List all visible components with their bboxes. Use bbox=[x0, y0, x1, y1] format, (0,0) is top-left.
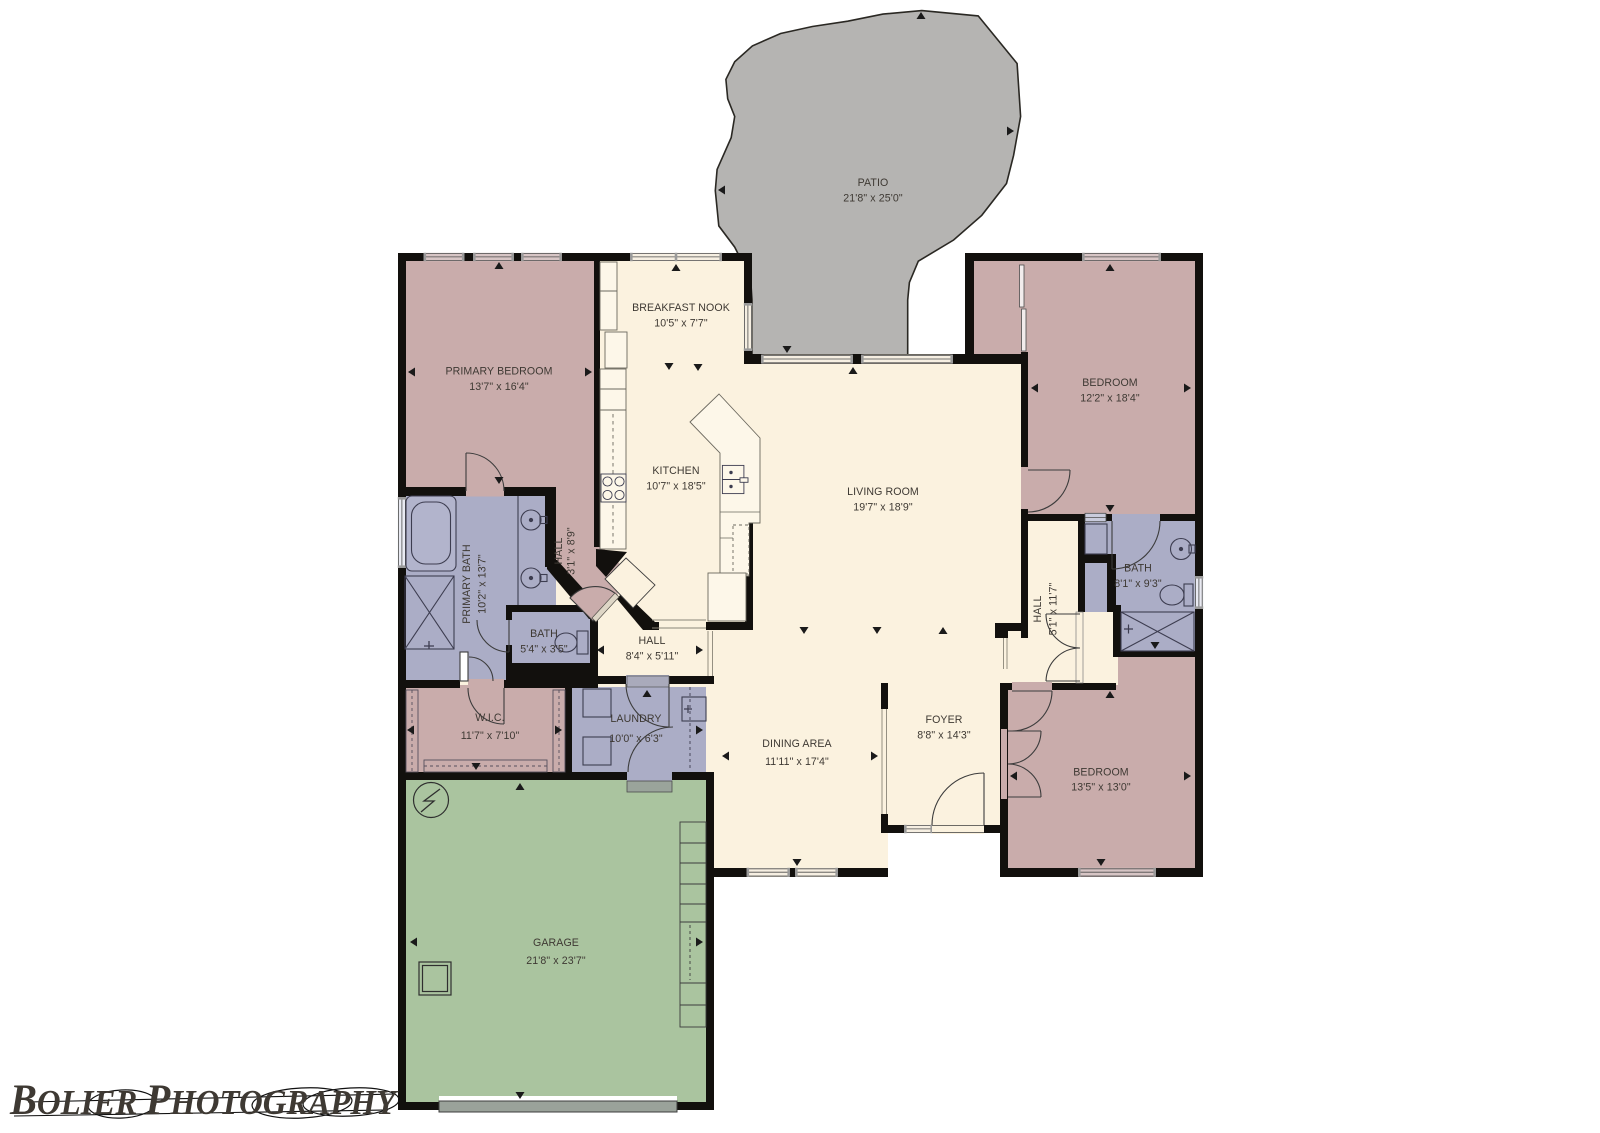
svg-text:DINING AREA: DINING AREA bbox=[762, 738, 832, 750]
svg-text:PRIMARY BATH: PRIMARY BATH bbox=[461, 544, 473, 624]
svg-text:5'4" x 3'5": 5'4" x 3'5" bbox=[520, 644, 568, 656]
svg-text:11'11" x 17'4": 11'11" x 17'4" bbox=[765, 756, 829, 768]
svg-text:W.I.C.: W.I.C. bbox=[475, 712, 504, 724]
svg-text:8'8" x 14'3": 8'8" x 14'3" bbox=[917, 730, 971, 742]
svg-text:10'7" x 18'5": 10'7" x 18'5" bbox=[646, 481, 706, 493]
svg-text:10'2" x 13'7": 10'2" x 13'7" bbox=[477, 554, 489, 614]
svg-text:21'8" x 25'0": 21'8" x 25'0" bbox=[843, 193, 903, 205]
svg-text:8'1" x 9'3": 8'1" x 9'3" bbox=[1114, 578, 1162, 590]
svg-text:BATH: BATH bbox=[1124, 563, 1152, 575]
svg-text:LAUNDRY: LAUNDRY bbox=[610, 713, 661, 725]
svg-text:10'0" x 6'3": 10'0" x 6'3" bbox=[609, 733, 663, 745]
svg-text:21'8" x 23'7": 21'8" x 23'7" bbox=[526, 955, 586, 967]
svg-text:FOYER: FOYER bbox=[926, 714, 963, 726]
svg-text:10'5" x 7'7": 10'5" x 7'7" bbox=[654, 318, 708, 330]
svg-text:3'1" x 8'9": 3'1" x 8'9" bbox=[566, 527, 578, 575]
svg-text:HALL: HALL bbox=[553, 538, 565, 565]
svg-text:5'1" x 11'7": 5'1" x 11'7" bbox=[1048, 583, 1060, 636]
svg-text:12'2" x 18'4": 12'2" x 18'4" bbox=[1080, 393, 1140, 405]
svg-text:BATH: BATH bbox=[530, 628, 558, 640]
svg-text:BEDROOM: BEDROOM bbox=[1073, 767, 1128, 779]
svg-text:BEDROOM: BEDROOM bbox=[1082, 377, 1137, 389]
svg-text:PRIMARY BEDROOM: PRIMARY BEDROOM bbox=[445, 366, 552, 378]
svg-text:BOLIER PHOTOGRAPHY: BOLIER PHOTOGRAPHY bbox=[9, 1077, 399, 1124]
svg-text:LIVING ROOM: LIVING ROOM bbox=[847, 486, 919, 498]
svg-text:8'4" x 5'11": 8'4" x 5'11" bbox=[626, 651, 679, 663]
svg-text:HALL: HALL bbox=[1032, 596, 1044, 623]
svg-text:HALL: HALL bbox=[639, 635, 666, 647]
svg-text:19'7" x 18'9": 19'7" x 18'9" bbox=[853, 502, 913, 514]
svg-text:KITCHEN: KITCHEN bbox=[652, 465, 699, 477]
svg-text:PATIO: PATIO bbox=[858, 177, 889, 189]
svg-text:13'7" x 16'4": 13'7" x 16'4" bbox=[469, 381, 529, 393]
svg-text:BREAKFAST NOOK: BREAKFAST NOOK bbox=[632, 302, 730, 314]
svg-text:11'7" x 7'10": 11'7" x 7'10" bbox=[461, 730, 520, 742]
svg-text:GARAGE: GARAGE bbox=[533, 937, 579, 949]
svg-text:13'5" x 13'0": 13'5" x 13'0" bbox=[1071, 782, 1131, 794]
